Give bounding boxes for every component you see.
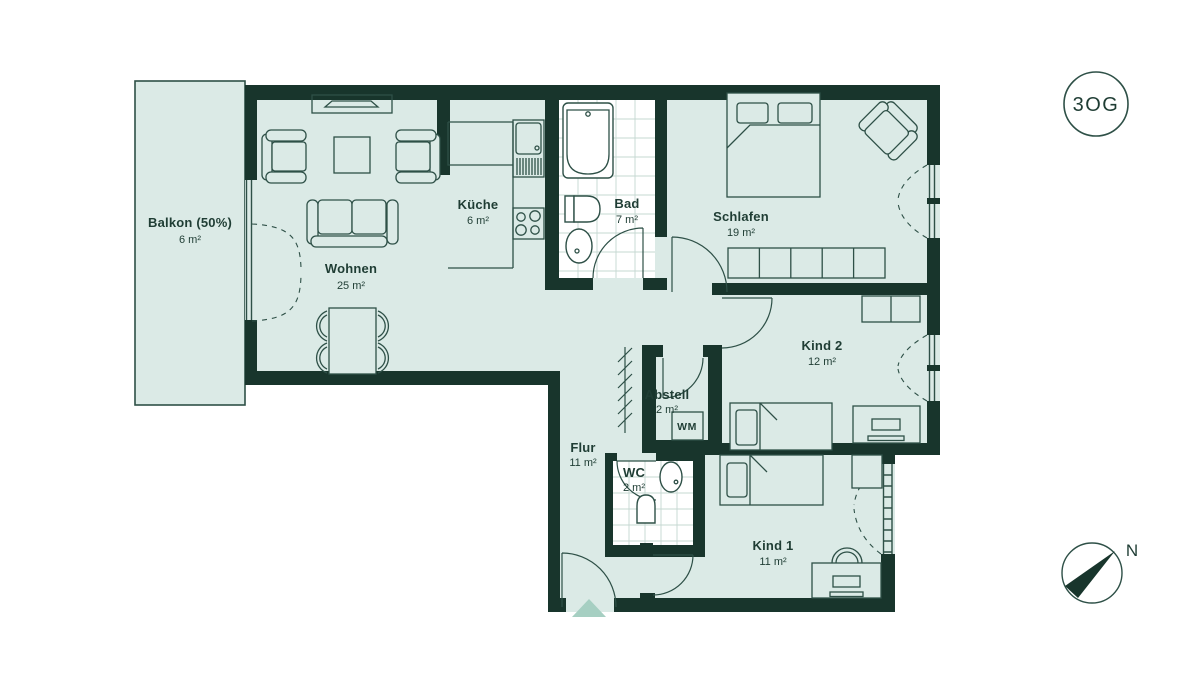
- floor-badge: 3OG: [1064, 72, 1128, 136]
- armchair-right: [396, 130, 440, 183]
- sofa-cushion: [352, 200, 386, 234]
- room-area-wohnen: 25 m²: [337, 280, 365, 292]
- sink-basin: [566, 229, 592, 263]
- room-label-kueche: Küche: [458, 197, 499, 212]
- bad-toilet: [565, 196, 600, 222]
- room-area-kind1: 11 m²: [759, 556, 787, 568]
- room-label-schlafen: Schlafen: [713, 209, 769, 224]
- armchair-arm: [396, 172, 436, 183]
- desk-top: [853, 406, 920, 443]
- room-area-kueche: 6 m²: [467, 215, 489, 227]
- armchair-arm: [266, 130, 306, 141]
- floor-plan-canvas: Balkon (50%) 6 m² Wohnen 25 m² Küche 6 m…: [0, 0, 1200, 700]
- desk-top: [812, 563, 881, 598]
- kid2-bed: [730, 403, 832, 450]
- room-area-kind2: 12 m²: [808, 356, 836, 368]
- room-area-abstell: 2 m²: [656, 404, 678, 416]
- room-area-flur: 11 m²: [569, 457, 597, 469]
- compass-needle-icon: [1065, 551, 1115, 598]
- armchair-seat: [396, 142, 430, 171]
- room-area-bad: 7 m²: [616, 214, 638, 226]
- floor-badge-label: 3OG: [1073, 94, 1120, 116]
- toilet-tank: [565, 196, 574, 222]
- wc-toilet: [637, 495, 655, 523]
- washing-machine-label: WM: [677, 421, 697, 433]
- sofa-back: [311, 236, 387, 247]
- armchair-left: [262, 130, 306, 183]
- kid1-bed: [720, 455, 823, 505]
- room-area-wc: 2 m²: [623, 482, 645, 494]
- room-label-kind1: Kind 1: [753, 538, 794, 553]
- bathtub: [563, 103, 613, 178]
- kid2-desk: [853, 406, 920, 443]
- kind2-window-mullion: [927, 365, 940, 371]
- drainer-hatch: [517, 158, 541, 175]
- floor-plan-page: Balkon (50%) 6 m² Wohnen 25 m² Küche 6 m…: [0, 0, 1200, 700]
- wardrobe-body: [728, 248, 885, 278]
- room-area-balkon: 6 m²: [179, 234, 201, 246]
- armchair-arm: [266, 172, 306, 183]
- room-area-schlafen: 19 m²: [727, 227, 755, 239]
- room-label-balkon: Balkon (50%): [148, 215, 232, 230]
- bad-sink: [566, 229, 592, 263]
- armchair-seat: [272, 142, 306, 171]
- room-label-wohnen: Wohnen: [325, 261, 377, 276]
- schlafen-window-mullion: [927, 198, 940, 204]
- bedroom-wardrobe: [728, 248, 885, 278]
- kid1-wardrobe: [852, 455, 882, 488]
- compass-north-label: N: [1126, 541, 1138, 560]
- dining-table: [329, 308, 376, 374]
- sofa-cushion: [318, 200, 352, 234]
- sofa-arm: [387, 200, 398, 244]
- kid2-wardrobe: [862, 296, 920, 322]
- compass: N: [1062, 541, 1138, 603]
- toilet-bowl: [574, 196, 600, 222]
- room-label-kind2: Kind 2: [802, 338, 843, 353]
- double-bed: [727, 93, 820, 197]
- wc-sink: [660, 462, 682, 492]
- armchair-arm: [396, 130, 436, 141]
- sofa: [307, 200, 398, 247]
- room-label-flur: Flur: [570, 440, 595, 455]
- room-label-abstell: Abstell: [645, 387, 690, 402]
- room-label-wc: WC: [623, 465, 645, 480]
- room-label-bad: Bad: [614, 196, 639, 211]
